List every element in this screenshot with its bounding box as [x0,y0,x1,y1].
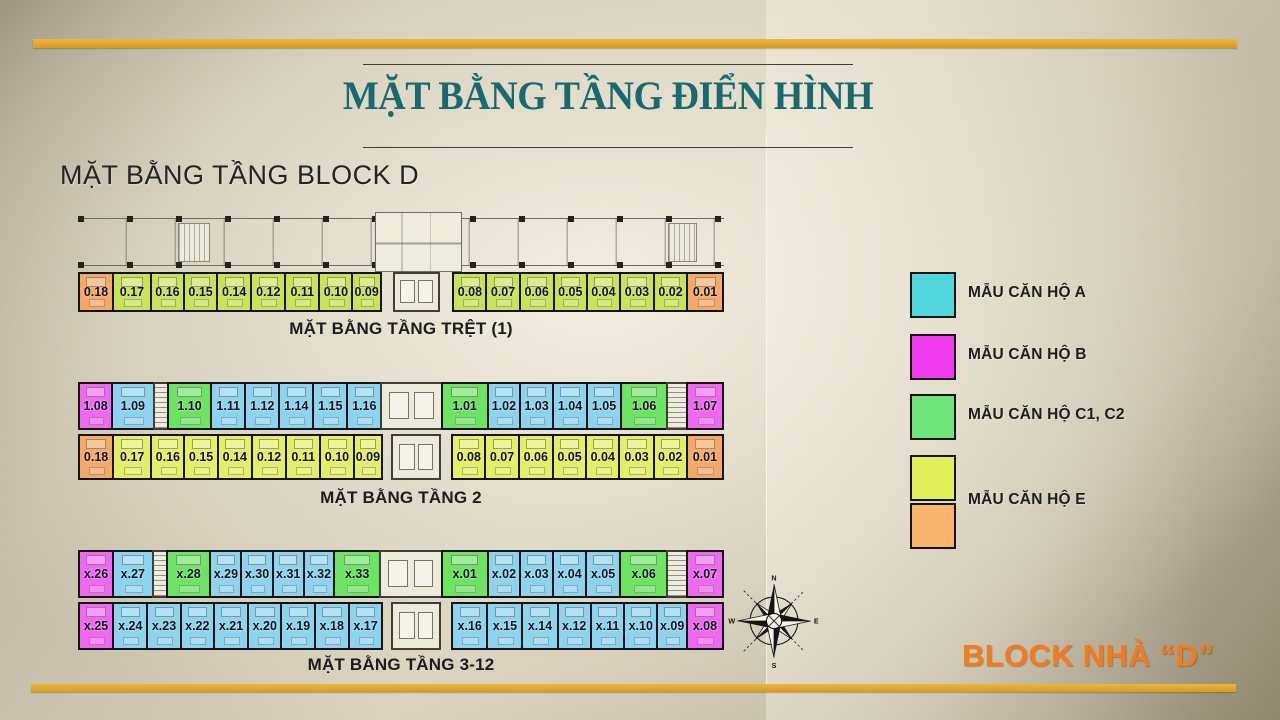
unit-row-level2-top: 1.081.091.101.111.121.141.151.161.011.02… [78,382,724,430]
unit-0.14: 0.14 [216,272,252,312]
unit-0.05: 0.05 [552,434,587,480]
legend: MẪU CĂN HỘ A MẪU CĂN HỘ B MẪU CĂN HỘ C1,… [910,272,1220,562]
unit-x.14: x.14 [521,602,558,650]
title-rule-bottom [363,147,853,148]
legend-label-b: MẪU CĂN HỘ B [968,346,1218,364]
core-cell [380,382,442,430]
unit-x.21: x.21 [213,602,249,650]
unit-0.17: 0.17 [112,272,152,312]
block-subtitle: MẶT BẰNG TẦNG BLOCK D [60,160,419,191]
unit-0.12: 0.12 [250,272,286,312]
legend-swatch-b [910,334,956,380]
core-detail [375,212,462,272]
unit-0.06: 0.06 [519,272,555,312]
core-cell [379,550,442,598]
unit-0.03: 0.03 [619,272,655,312]
floor-plan-levels-3-12: x.26x.27x.28x.29x.30x.31x.32x.33x.01x.02… [78,550,724,685]
unit-0.04: 0.04 [586,272,621,312]
unit-1.01: 1.01 [441,382,489,430]
stair-cell [666,382,688,430]
unit-0.06: 0.06 [518,434,554,480]
unit-x.18: x.18 [314,602,350,650]
unit-1.12: 1.12 [244,382,280,430]
unit-x.20: x.20 [247,602,282,650]
floor-plan-ground: 0.180.170.160.150.140.120.110.100.090.08… [78,218,724,353]
unit-1.11: 1.11 [210,382,246,430]
unit-0.14: 0.14 [217,434,253,480]
unit-0.01: 0.01 [686,272,724,312]
structural-frame-plan [78,218,724,266]
unit-0.04: 0.04 [585,434,620,480]
core-cell [391,434,440,480]
unit-1.09: 1.09 [111,382,155,430]
unit-x.08: x.08 [686,602,724,650]
unit-0.17: 0.17 [112,434,152,480]
unit-0.07: 0.07 [484,434,519,480]
stair-detail-left [178,223,210,262]
legend-label-a: MẪU CĂN HỘ A [968,284,1218,302]
unit-1.08: 1.08 [78,382,113,430]
unit-x.03: x.03 [519,550,554,598]
legend-label-e: MẪU CĂN HỘ E [968,491,1218,509]
unit-x.09: x.09 [656,602,687,650]
unit-0.16: 0.16 [150,434,185,480]
unit-x.26: x.26 [78,550,114,598]
unit-0.08: 0.08 [451,434,486,480]
unit-1.16: 1.16 [346,382,382,430]
compass-south-label: S [772,662,777,670]
legend-swatch-e-orange [910,503,956,549]
unit-0.18: 0.18 [78,272,114,312]
unit-1.14: 1.14 [278,382,314,430]
unit-0.12: 0.12 [251,434,287,480]
legend-swatch-c [910,394,956,440]
unit-x.27: x.27 [112,550,154,598]
unit-0.11: 0.11 [285,434,321,480]
unit-row-typical-bottom: x.25x.24x.23x.22x.21x.20x.19x.18x.17x.16… [78,602,724,650]
unit-x.05: x.05 [585,550,621,598]
unit-x.23: x.23 [146,602,181,650]
unit-1.06: 1.06 [620,382,668,430]
unit-x.10: x.10 [623,602,658,650]
top-gold-bar [33,39,1237,48]
unit-0.02: 0.02 [653,434,688,480]
unit-0.01: 0.01 [686,434,724,480]
unit-row-level2-bottom: 0.180.170.160.150.140.120.110.100.090.08… [78,434,724,480]
page-title: MẶT BẰNG TẦNG ĐIỂN HÌNH [30,72,1185,119]
unit-x.19: x.19 [280,602,315,650]
unit-x.30: x.30 [240,550,273,598]
floor-plan-level-2: 1.081.091.101.111.121.141.151.161.011.02… [78,382,724,517]
core-cell [391,602,440,650]
unit-0.11: 0.11 [284,272,320,312]
unit-1.07: 1.07 [686,382,724,430]
unit-0.03: 0.03 [618,434,654,480]
unit-x.24: x.24 [112,602,148,650]
unit-x.17: x.17 [348,602,383,650]
legend-swatch-a [910,272,956,318]
unit-row-typical-top: x.26x.27x.28x.29x.30x.31x.32x.33x.01x.02… [78,550,724,598]
unit-x.11: x.11 [590,602,625,650]
legend-swatch-e-yellow [910,455,956,501]
unit-0.16: 0.16 [150,272,185,312]
unit-x.15: x.15 [486,602,523,650]
unit-1.02: 1.02 [487,382,521,430]
stair-detail-right [668,223,697,262]
unit-0.15: 0.15 [183,434,218,480]
unit-0.07: 0.07 [485,272,520,312]
unit-0.10: 0.10 [318,272,353,312]
unit-1.04: 1.04 [552,382,588,430]
unit-0.02: 0.02 [653,272,688,312]
legend-label-c: MẪU CĂN HỘ C1, C2 [968,406,1218,424]
unit-x.02: x.02 [487,550,521,598]
unit-x.22: x.22 [180,602,215,650]
unit-x.01: x.01 [441,550,489,598]
unit-x.25: x.25 [78,602,114,650]
core-cell [393,272,440,312]
unit-x.32: x.32 [303,550,335,598]
unit-x.28: x.28 [166,550,211,598]
compass-west-label: W [728,617,735,625]
unit-x.33: x.33 [333,550,381,598]
unit-0.15: 0.15 [183,272,218,312]
unit-1.10: 1.10 [167,382,212,430]
bottom-gold-bar [31,684,1236,692]
floor-label-level2: MẶT BẰNG TẦNG 2 [78,488,724,508]
unit-0.09: 0.09 [353,434,384,480]
stair-cell [666,550,688,598]
unit-x.04: x.04 [552,550,587,598]
unit-0.08: 0.08 [452,272,487,312]
unit-0.09: 0.09 [351,272,381,312]
unit-x.12: x.12 [557,602,592,650]
unit-x.29: x.29 [209,550,242,598]
unit-1.03: 1.03 [519,382,554,430]
unit-row-ground: 0.180.170.160.150.140.120.110.100.090.08… [78,272,724,312]
unit-1.05: 1.05 [586,382,622,430]
compass-north-label: N [771,574,776,582]
unit-x.07: x.07 [686,550,724,598]
title-rule-top [363,64,853,65]
compass-east-label: E [814,617,819,625]
unit-x.31: x.31 [272,550,305,598]
unit-1.15: 1.15 [312,382,348,430]
unit-x.06: x.06 [619,550,668,598]
floor-label-ground: MẶT BẰNG TẦNG TRỆT (1) [78,319,724,339]
unit-0.18: 0.18 [78,434,114,480]
unit-x.16: x.16 [451,602,488,650]
unit-0.10: 0.10 [319,434,354,480]
compass-rose: N E S W [723,570,825,672]
floor-label-typical: MẶT BẰNG TẦNG 3-12 [78,655,724,675]
unit-0.05: 0.05 [553,272,588,312]
block-name-label: BLOCK NHÀ “D” [948,638,1228,674]
